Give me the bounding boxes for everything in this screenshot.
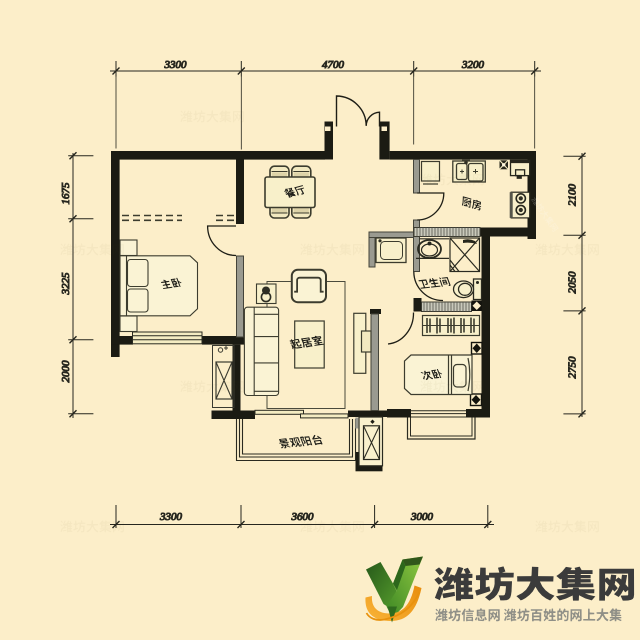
svg-text:2000: 2000 bbox=[60, 360, 72, 383]
svg-text:2050: 2050 bbox=[567, 271, 579, 294]
svg-text:3225: 3225 bbox=[60, 272, 72, 296]
svg-text:3200: 3200 bbox=[461, 59, 485, 71]
svg-text:2100: 2100 bbox=[567, 184, 579, 207]
svg-text:2750: 2750 bbox=[567, 356, 579, 379]
svg-text:4700: 4700 bbox=[322, 59, 345, 71]
svg-text:3300: 3300 bbox=[164, 59, 188, 71]
svg-text:3600: 3600 bbox=[291, 511, 315, 523]
svg-text:3300: 3300 bbox=[159, 511, 183, 523]
svg-text:3000: 3000 bbox=[410, 511, 434, 523]
svg-text:1675: 1675 bbox=[60, 182, 72, 205]
